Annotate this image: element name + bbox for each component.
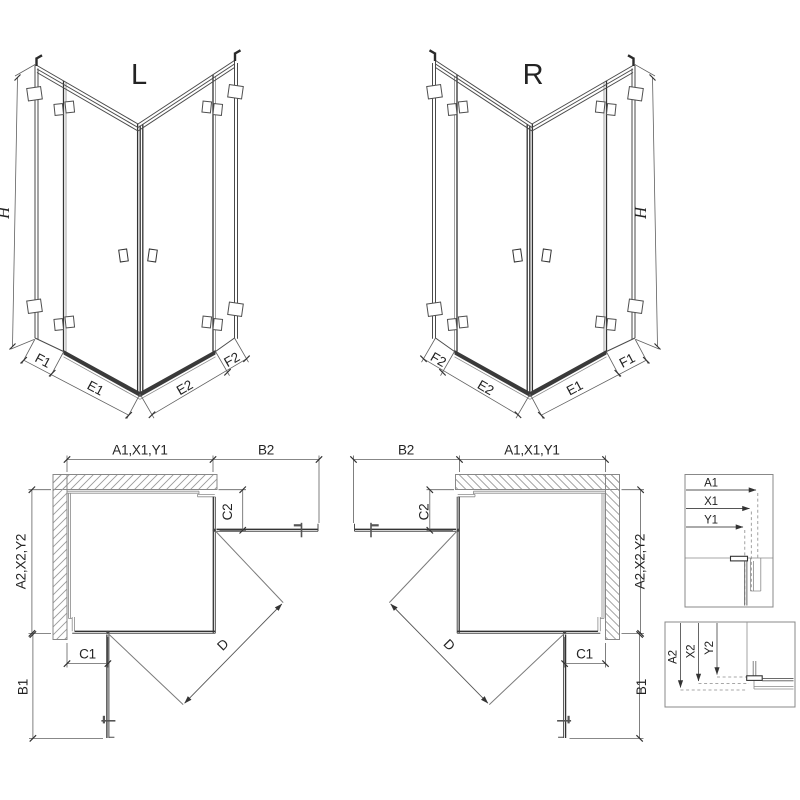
detail-box-horizontal: A1 X1 Y1 xyxy=(685,475,773,608)
iso-left-dim-f1: F1 xyxy=(33,350,54,370)
plan-right-dim-b1: B1 xyxy=(634,679,649,695)
plan-left-dim-d: D xyxy=(214,636,232,654)
iso-right-dim-h: H xyxy=(631,206,650,220)
plan-left-dim-b2: B2 xyxy=(258,443,274,458)
plan-left-dim-a1x1y1: A1,X1,Y1 xyxy=(112,443,167,458)
drawing-svg: L H F1 E1 E2 F2 R H F2 E2 E1 F1 A1,X1,Y1… xyxy=(0,0,800,800)
wall-profile-section xyxy=(731,556,748,561)
detail-dim-y2: Y2 xyxy=(704,641,716,655)
plan-right-dim-a1x1y1: A1,X1,Y1 xyxy=(504,443,559,458)
detail-dim-x1: X1 xyxy=(704,496,718,508)
plan-right-dim-c2: C2 xyxy=(417,504,432,521)
iso-view-left: L H F1 E1 E2 F2 xyxy=(0,50,250,418)
technical-drawing-sheet: L H F1 E1 E2 F2 R H F2 E2 E1 F1 A1,X1,Y1… xyxy=(0,0,800,800)
detail-dim-a2: A2 xyxy=(668,650,680,664)
detail-dim-a1: A1 xyxy=(704,478,718,490)
plan-right-geometry xyxy=(350,456,644,742)
plan-right-dim-b2: B2 xyxy=(398,443,414,458)
plan-view-right: A1,X1,Y1 B2 C2 A2,X2,Y2 C1 B1 D xyxy=(350,443,649,742)
plan-left-dim-c1: C1 xyxy=(79,647,96,662)
iso-left-dim-e2: E2 xyxy=(174,377,195,398)
plan-left-geometry xyxy=(29,456,323,742)
iso-right-dim-e2: E2 xyxy=(475,377,496,398)
detail-box-horizontal-frame xyxy=(685,475,773,608)
detail-dim-y1: Y1 xyxy=(704,515,718,527)
plan-right-dim-a2x2y2: A2,X2,Y2 xyxy=(633,534,648,589)
iso-right-version-label: R xyxy=(523,59,544,91)
plan-left-dim-b1: B1 xyxy=(16,679,31,695)
iso-view-right: R H F2 E2 E1 F1 xyxy=(420,50,660,418)
plan-right-dim-d: D xyxy=(440,636,458,654)
bottom-profile-section xyxy=(747,676,763,681)
detail-dim-x2: X2 xyxy=(686,645,698,659)
detail-box-vertical-frame xyxy=(665,622,795,707)
plan-right-dim-c1: C1 xyxy=(576,647,593,662)
iso-right-dim-e1: E1 xyxy=(564,378,585,399)
iso-left-version-label: L xyxy=(131,59,147,91)
plan-left-dim-c2: C2 xyxy=(220,504,235,521)
detail-box-vertical: A2 X2 Y2 xyxy=(665,622,795,707)
iso-left-dim-e1: E1 xyxy=(85,378,106,399)
iso-right-dim-f1: F1 xyxy=(617,350,638,370)
iso-left-dim-h: H xyxy=(0,206,13,220)
plan-view-left: A1,X1,Y1 B2 C2 A2,X2,Y2 C1 B1 D xyxy=(14,443,323,742)
plan-left-dim-a2x2y2: A2,X2,Y2 xyxy=(14,534,29,589)
